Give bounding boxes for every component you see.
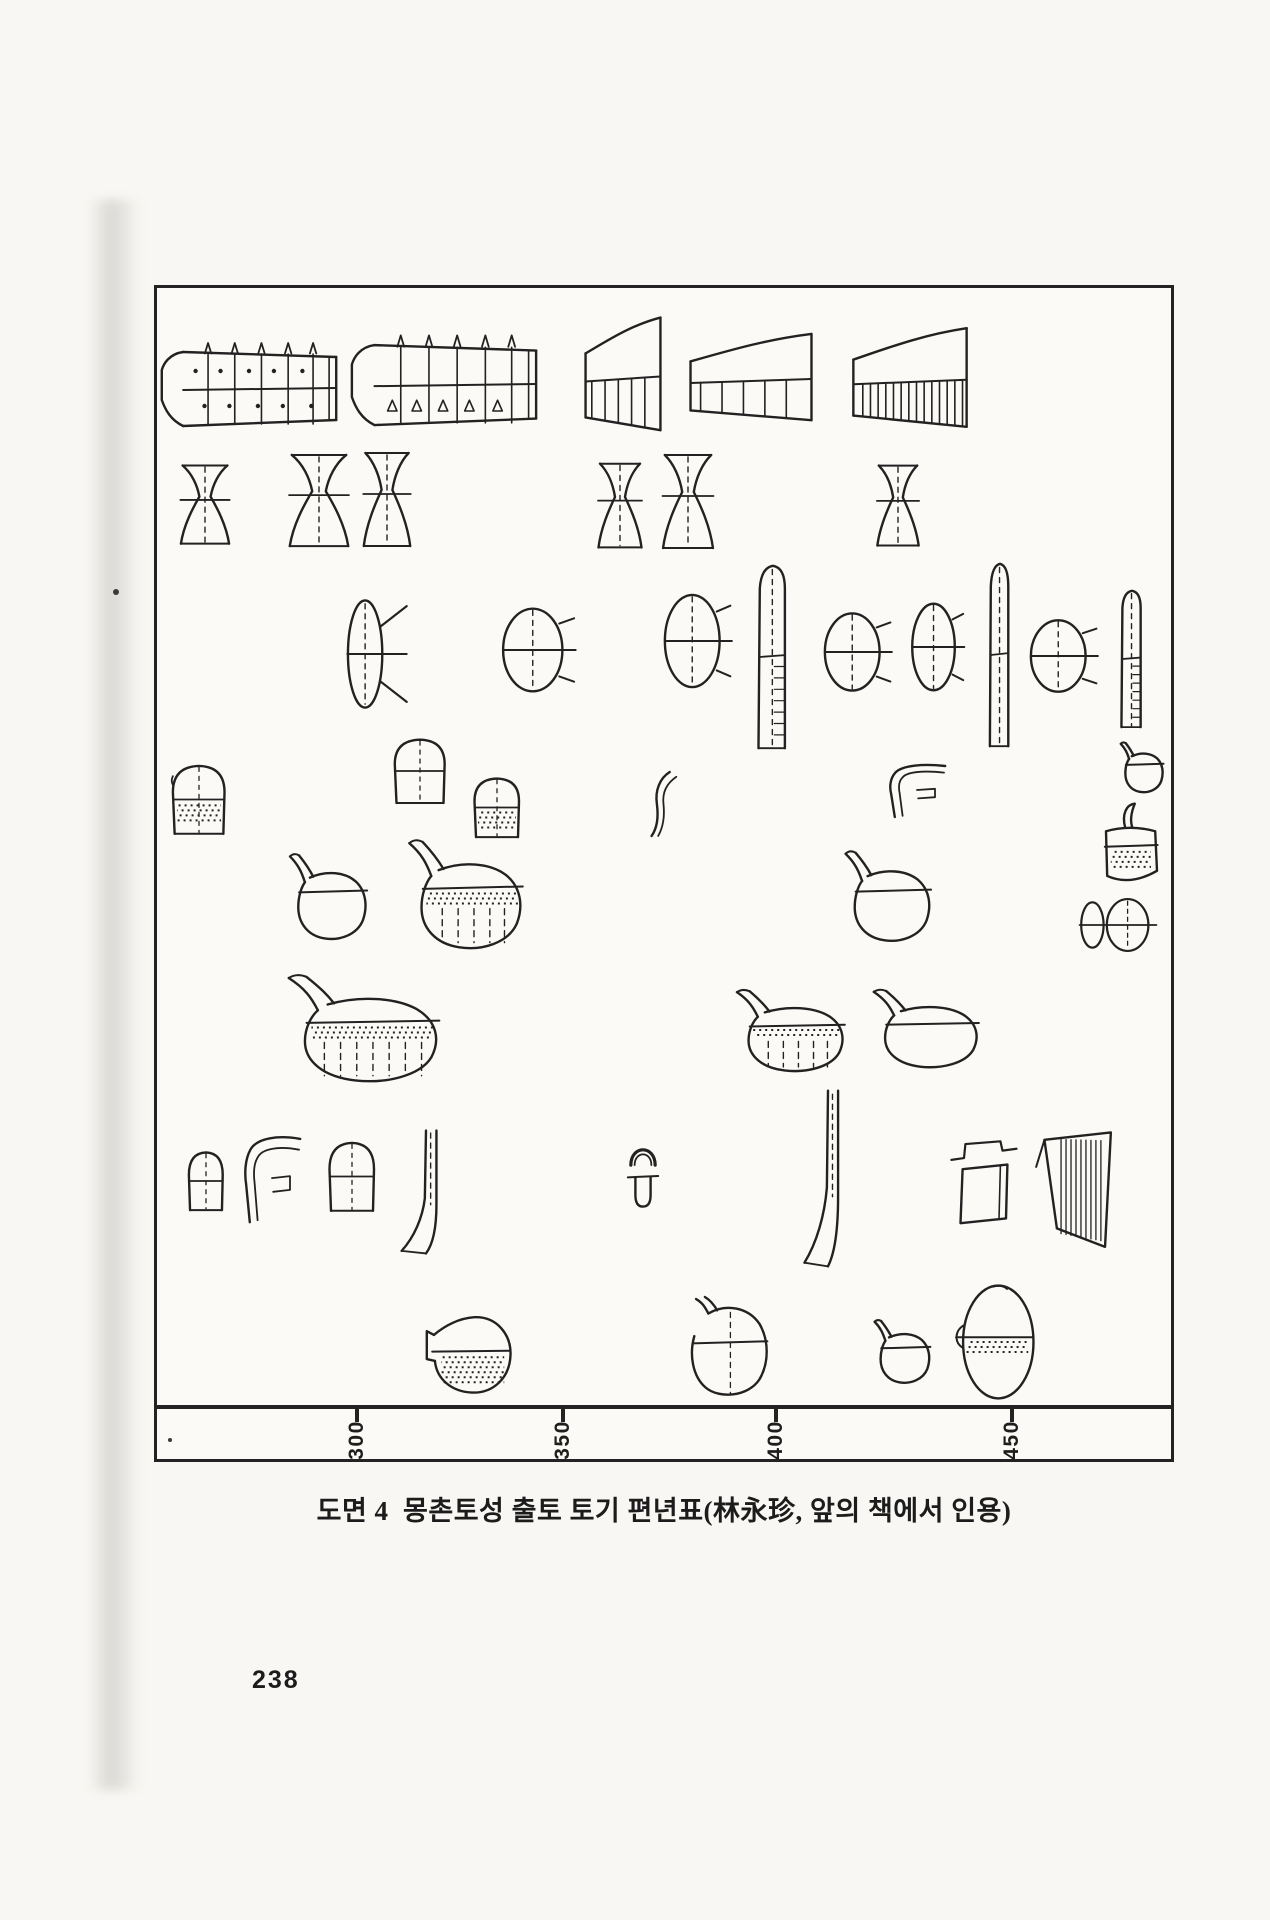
pottery-artifact-finned_dish	[347, 600, 406, 707]
pottery-artifact-jar	[737, 990, 845, 1071]
pottery-drawings-layer	[157, 288, 1171, 1459]
pottery-artifact-stand_wide	[162, 343, 336, 426]
pottery-artifact-lidded_bowl	[503, 609, 576, 692]
page-number: 238	[252, 1666, 300, 1695]
scan-speck	[113, 589, 119, 595]
pottery-artifact-jar	[290, 854, 367, 939]
pottery-artifact-lidded_bowl	[912, 604, 964, 690]
pottery-artifact-small_jar	[1121, 742, 1164, 792]
pottery-artifact-stand_taper	[586, 318, 661, 431]
pottery-artifact-stand_wide	[352, 335, 536, 425]
pottery-artifact-lidded_bowl	[1031, 620, 1098, 691]
axis-tick-label: 350	[551, 1420, 575, 1460]
pottery-artifact-lidded_bowl	[825, 613, 892, 690]
pottery-artifact-ovoid_jar	[956, 1286, 1033, 1399]
axis-tick-label: 400	[764, 1420, 788, 1460]
pottery-artifact-hourglass	[662, 455, 713, 548]
pottery-artifact-stand_taper	[853, 328, 966, 427]
pottery-chronology-figure: 300350400450	[154, 285, 1174, 1462]
pottery-artifact-jar	[409, 840, 522, 948]
pottery-artifact-jar	[846, 851, 932, 940]
axis-tick-label: 300	[345, 1420, 369, 1460]
pottery-artifact-cup	[330, 1143, 375, 1211]
pottery-artifact-bottle	[427, 1317, 511, 1392]
pottery-artifact-hourglass	[877, 466, 919, 546]
pottery-artifact-hourglass	[180, 466, 229, 544]
pottery-artifact-jar	[289, 975, 440, 1081]
pottery-artifact-jar	[874, 990, 979, 1067]
pottery-artifact-rim_sherd	[890, 765, 945, 817]
pottery-artifact-sherd	[652, 772, 677, 836]
pottery-artifact-small_jar	[875, 1320, 931, 1383]
scan-speck	[168, 1438, 172, 1442]
pottery-artifact-funnel	[1036, 1132, 1111, 1246]
pottery-artifact-round_jar	[692, 1297, 767, 1395]
pottery-artifact-tiny_pair	[1080, 899, 1157, 951]
scan-edge-shadow	[88, 200, 140, 1790]
pottery-artifact-neck_ped	[804, 1091, 838, 1267]
pottery-artifact-hourglass	[363, 453, 411, 546]
pottery-artifact-tall_stem	[990, 564, 1008, 746]
pottery-artifact-horn_jar	[1105, 804, 1158, 880]
pottery-artifact-neck_ped	[402, 1131, 437, 1254]
pottery-artifact-tall_stem	[758, 566, 784, 748]
axis-tick-label: 450	[1000, 1420, 1024, 1460]
timeline-axis: 300350400450	[157, 1405, 1171, 1459]
pottery-artifact-rim_sherd	[245, 1137, 300, 1222]
pottery-artifact-box_lid	[951, 1141, 1016, 1223]
scanned-page: 300350400450 도면 4 몽촌토성 출토 토기 편년표(林永珍, 앞의…	[0, 0, 1270, 1920]
pottery-artifact-cup	[395, 740, 445, 803]
pottery-artifact-tall_stem	[1121, 591, 1140, 727]
pottery-artifact-hourglass	[289, 455, 349, 546]
pottery-artifact-hourglass	[598, 464, 642, 548]
pottery-artifact-lidded_bowl	[665, 595, 732, 687]
pottery-artifact-handle	[628, 1150, 658, 1207]
pottery-artifact-cup	[189, 1152, 223, 1210]
pottery-artifact-stand_taper	[691, 334, 812, 420]
pottery-artifact-cup	[172, 766, 225, 834]
figure-caption: 도면 4 몽촌토성 출토 토기 편년표(林永珍, 앞의 책에서 인용)	[154, 1489, 1174, 1528]
pottery-artifact-cup	[475, 779, 520, 838]
